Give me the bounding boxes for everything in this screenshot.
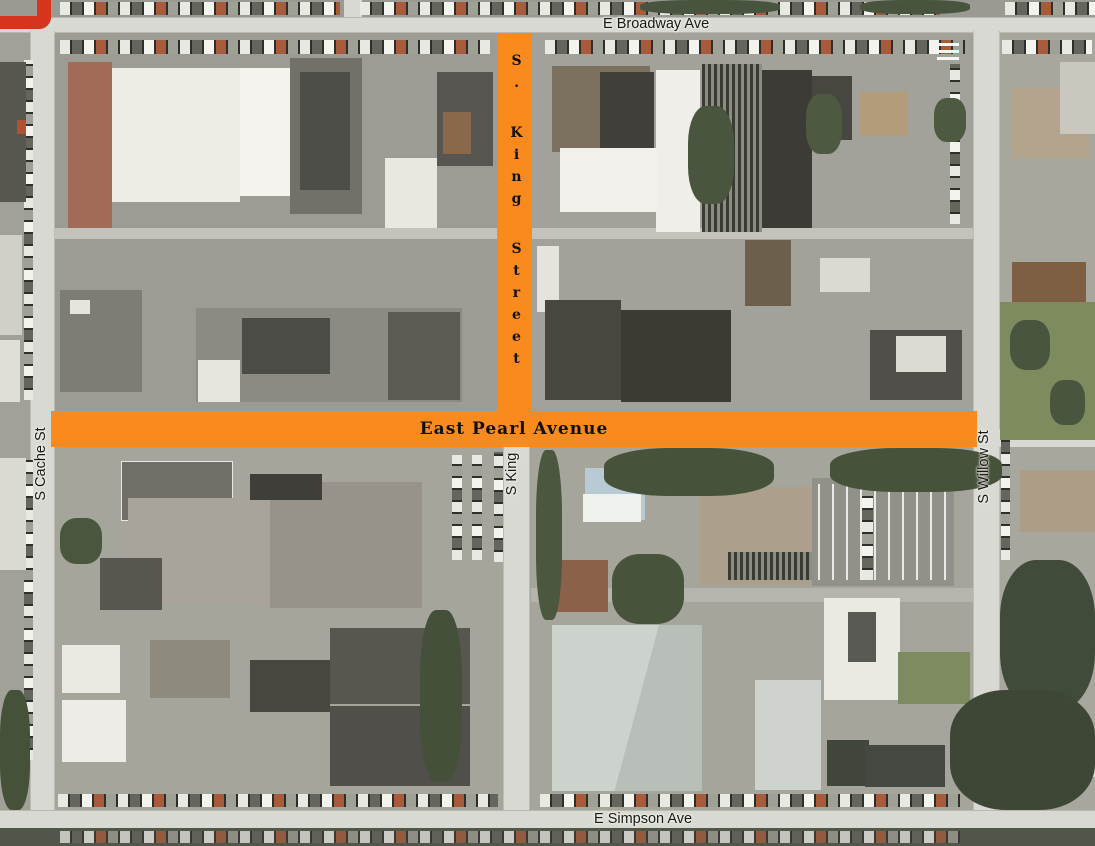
building xyxy=(70,300,90,314)
parked-cars xyxy=(58,794,498,807)
tree-cluster xyxy=(612,554,684,624)
building xyxy=(62,645,120,693)
tree-cluster xyxy=(420,610,462,782)
parked-cars xyxy=(1005,2,1095,15)
highlight-king-street: S. King Street xyxy=(497,33,532,411)
parked-cars xyxy=(494,452,503,562)
building xyxy=(728,552,812,580)
building xyxy=(242,318,330,374)
parking-stripes xyxy=(818,484,948,580)
parked-cars xyxy=(60,40,490,54)
building xyxy=(1020,470,1095,532)
parked-cars xyxy=(472,455,482,560)
tree-cluster xyxy=(934,98,966,142)
parked-cars xyxy=(452,455,462,560)
tree-cluster xyxy=(640,0,780,14)
road-king-lower xyxy=(503,447,530,846)
building xyxy=(62,700,126,762)
building xyxy=(250,474,322,500)
building xyxy=(545,300,621,400)
building xyxy=(0,458,26,570)
parked-cars xyxy=(545,40,965,54)
road-broadway xyxy=(0,17,1095,33)
building xyxy=(1060,62,1095,134)
building xyxy=(552,625,702,791)
tree-cluster xyxy=(0,690,30,810)
lawn xyxy=(898,652,970,704)
building xyxy=(560,148,658,212)
building xyxy=(388,312,460,400)
tree-cluster xyxy=(1010,320,1050,370)
building xyxy=(865,745,945,787)
king-street-label: S King xyxy=(504,453,520,496)
road-simpson xyxy=(0,810,1095,830)
building xyxy=(745,240,791,306)
simpson-street-label: E Simpson Ave xyxy=(594,811,692,827)
parked-cars xyxy=(540,794,960,807)
tree-cluster xyxy=(604,448,774,496)
building xyxy=(0,235,22,335)
building xyxy=(150,640,230,698)
tree-cluster xyxy=(688,106,734,204)
building xyxy=(1012,262,1086,304)
building xyxy=(270,482,422,608)
alley xyxy=(55,228,497,239)
building xyxy=(848,612,876,662)
tree-cluster xyxy=(950,690,1095,810)
building xyxy=(100,558,162,610)
parked-cars xyxy=(1002,40,1092,54)
crosswalk xyxy=(937,40,959,60)
willow-street-label: S Willow St xyxy=(976,430,992,503)
building xyxy=(896,336,946,372)
tree-cluster xyxy=(60,518,102,564)
aerial-map: S. King Street East Pearl Avenue E Broad… xyxy=(0,0,1095,846)
parked-cars xyxy=(1001,430,1010,560)
parked-cars xyxy=(862,485,873,580)
parked-cars xyxy=(950,64,960,224)
building xyxy=(583,494,641,522)
parked-car xyxy=(17,120,26,134)
tree-cluster xyxy=(1000,560,1095,710)
building xyxy=(240,68,290,196)
parked-cars xyxy=(60,831,960,843)
building xyxy=(443,112,471,154)
building xyxy=(68,62,112,228)
king-street-highlight-label: S. King Street xyxy=(505,53,525,413)
building xyxy=(250,660,330,712)
tree-cluster xyxy=(860,0,970,14)
building xyxy=(820,258,870,292)
building xyxy=(621,310,731,402)
building xyxy=(860,92,908,136)
building xyxy=(0,340,20,402)
building xyxy=(300,72,350,190)
building xyxy=(600,72,654,156)
building xyxy=(198,360,240,402)
building xyxy=(755,680,821,790)
tree-cluster xyxy=(806,94,842,154)
cache-street-label: S Cache St xyxy=(33,427,49,500)
building xyxy=(762,70,812,228)
parked-cars xyxy=(60,2,340,15)
tree-cluster xyxy=(536,450,562,620)
building xyxy=(112,68,240,202)
broadway-street-label: E Broadway Ave xyxy=(603,16,709,32)
route-line-corner xyxy=(0,0,51,29)
tree-cluster xyxy=(1050,380,1085,425)
building xyxy=(827,740,869,786)
building xyxy=(385,158,437,228)
pearl-avenue-highlight-label: East Pearl Avenue xyxy=(51,411,977,447)
highlight-pearl-avenue: East Pearl Avenue xyxy=(51,411,977,447)
